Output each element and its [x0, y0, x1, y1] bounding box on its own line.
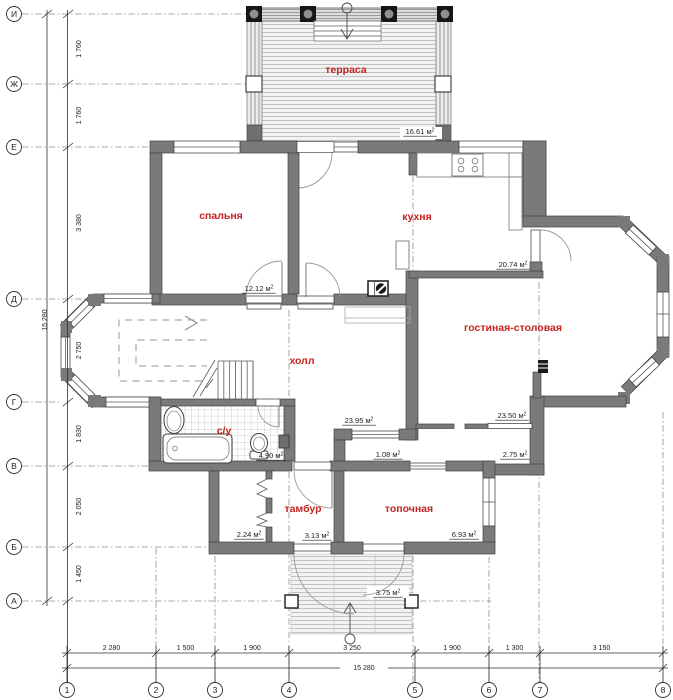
- svg-text:2.75 м2: 2.75 м2: [503, 450, 528, 459]
- svg-text:3: 3: [213, 685, 218, 695]
- svg-text:15 280: 15 280: [353, 665, 375, 672]
- svg-text:3.75 м2: 3.75 м2: [376, 588, 401, 597]
- svg-text:6.93 м2: 6.93 м2: [452, 530, 477, 539]
- svg-text:1 760: 1 760: [76, 107, 83, 125]
- svg-text:2.24 м2: 2.24 м2: [237, 530, 262, 539]
- svg-text:1 300: 1 300: [506, 645, 524, 652]
- svg-text:23.95 м2: 23.95 м2: [345, 416, 374, 425]
- svg-text:кухня: кухня: [402, 211, 432, 223]
- svg-text:холл: холл: [289, 355, 314, 367]
- svg-text:с/у: с/у: [217, 425, 232, 437]
- svg-text:4: 4: [287, 685, 292, 695]
- svg-text:А: А: [11, 596, 17, 606]
- svg-text:20.74 м2: 20.74 м2: [499, 260, 528, 269]
- svg-text:1 450: 1 450: [76, 565, 83, 583]
- svg-text:1 500: 1 500: [177, 645, 195, 652]
- svg-text:Г: Г: [12, 397, 17, 407]
- svg-text:терраса: терраса: [325, 64, 367, 76]
- svg-text:23.50 м2: 23.50 м2: [498, 411, 527, 420]
- svg-text:15 280: 15 280: [42, 309, 49, 331]
- svg-text:тамбур: тамбур: [284, 503, 321, 515]
- svg-text:12.12 м2: 12.12 м2: [245, 284, 274, 293]
- svg-text:5: 5: [413, 685, 418, 695]
- svg-text:3.13 м2: 3.13 м2: [305, 531, 330, 540]
- svg-text:1 900: 1 900: [443, 645, 461, 652]
- svg-text:В: В: [11, 461, 17, 471]
- svg-text:2 280: 2 280: [103, 645, 121, 652]
- svg-text:4.90 м2: 4.90 м2: [259, 451, 284, 460]
- svg-text:1 900: 1 900: [243, 645, 261, 652]
- svg-text:6: 6: [487, 685, 492, 695]
- svg-text:Д: Д: [11, 294, 17, 304]
- svg-text:Ж: Ж: [10, 79, 18, 89]
- svg-text:гостиная-столовая: гостиная-столовая: [464, 322, 562, 334]
- svg-text:1: 1: [65, 685, 70, 695]
- svg-text:8: 8: [661, 685, 666, 695]
- svg-text:Б: Б: [11, 542, 17, 552]
- svg-text:1.08 м2: 1.08 м2: [376, 450, 401, 459]
- svg-text:2 750: 2 750: [76, 342, 83, 360]
- svg-text:7: 7: [538, 685, 543, 695]
- svg-text:1 760: 1 760: [76, 40, 83, 58]
- svg-text:спальня: спальня: [199, 210, 243, 222]
- svg-text:топочная: топочная: [385, 503, 433, 515]
- svg-text:Е: Е: [11, 142, 17, 152]
- svg-text:2 050: 2 050: [76, 498, 83, 516]
- svg-text:3 250: 3 250: [343, 645, 361, 652]
- svg-text:И: И: [11, 9, 17, 19]
- svg-text:16.61 м2: 16.61 м2: [406, 127, 435, 136]
- svg-text:2: 2: [154, 685, 159, 695]
- svg-text:3 380: 3 380: [76, 214, 83, 232]
- svg-text:3 150: 3 150: [593, 645, 611, 652]
- svg-text:1 830: 1 830: [76, 425, 83, 443]
